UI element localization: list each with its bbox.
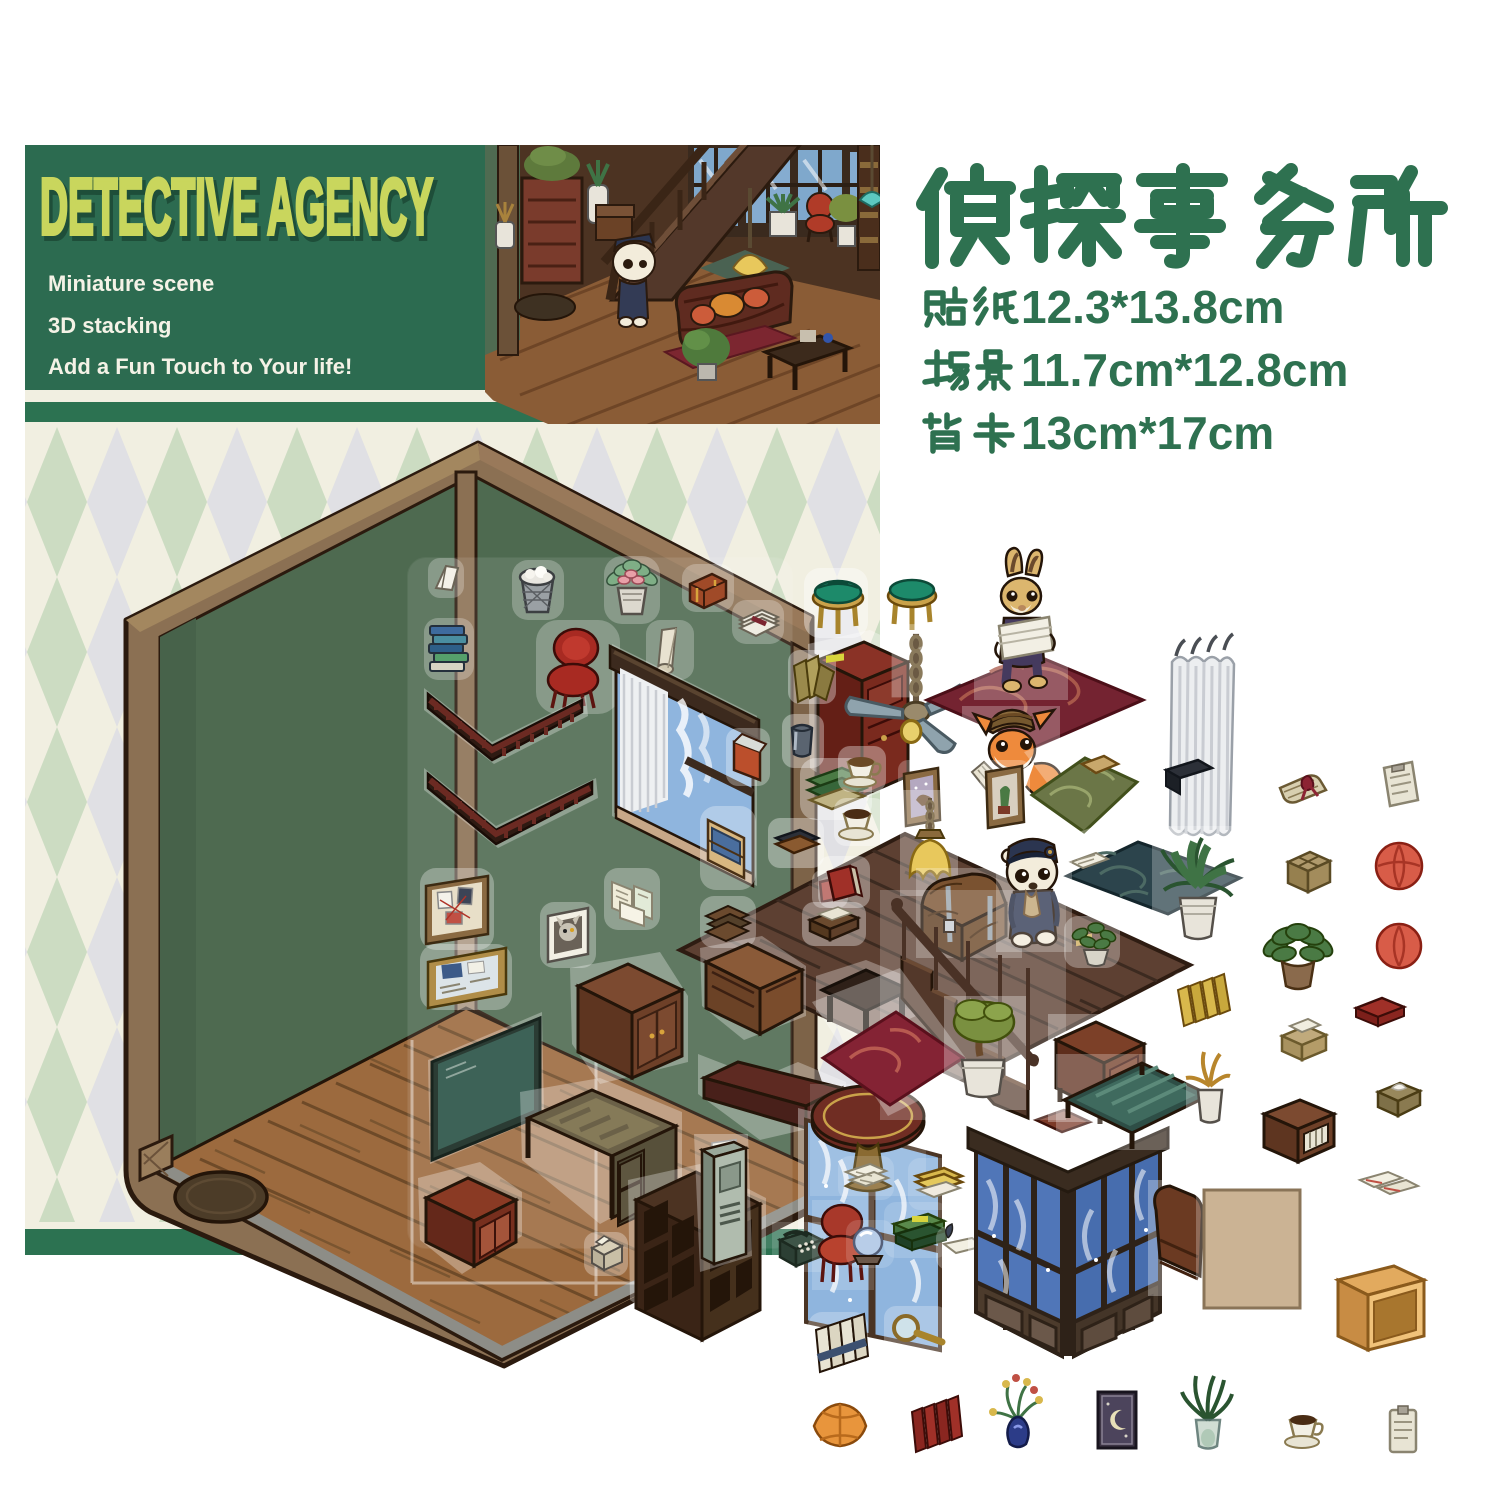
svg-text:Add a Fun Touch to Your life!: Add a Fun Touch to Your life! [48,354,352,379]
svg-text:3D stacking: 3D stacking [48,313,172,338]
svg-text:11.7cm*12.8cm: 11.7cm*12.8cm [1021,344,1348,396]
svg-text:Miniature scene: Miniature scene [48,271,214,296]
svg-text:12.3*13.8cm: 12.3*13.8cm [1021,281,1284,333]
svg-text:DETECTIVE AGENCY: DETECTIVE AGENCY [40,162,433,251]
svg-text:13cm*17cm: 13cm*17cm [1021,407,1274,459]
